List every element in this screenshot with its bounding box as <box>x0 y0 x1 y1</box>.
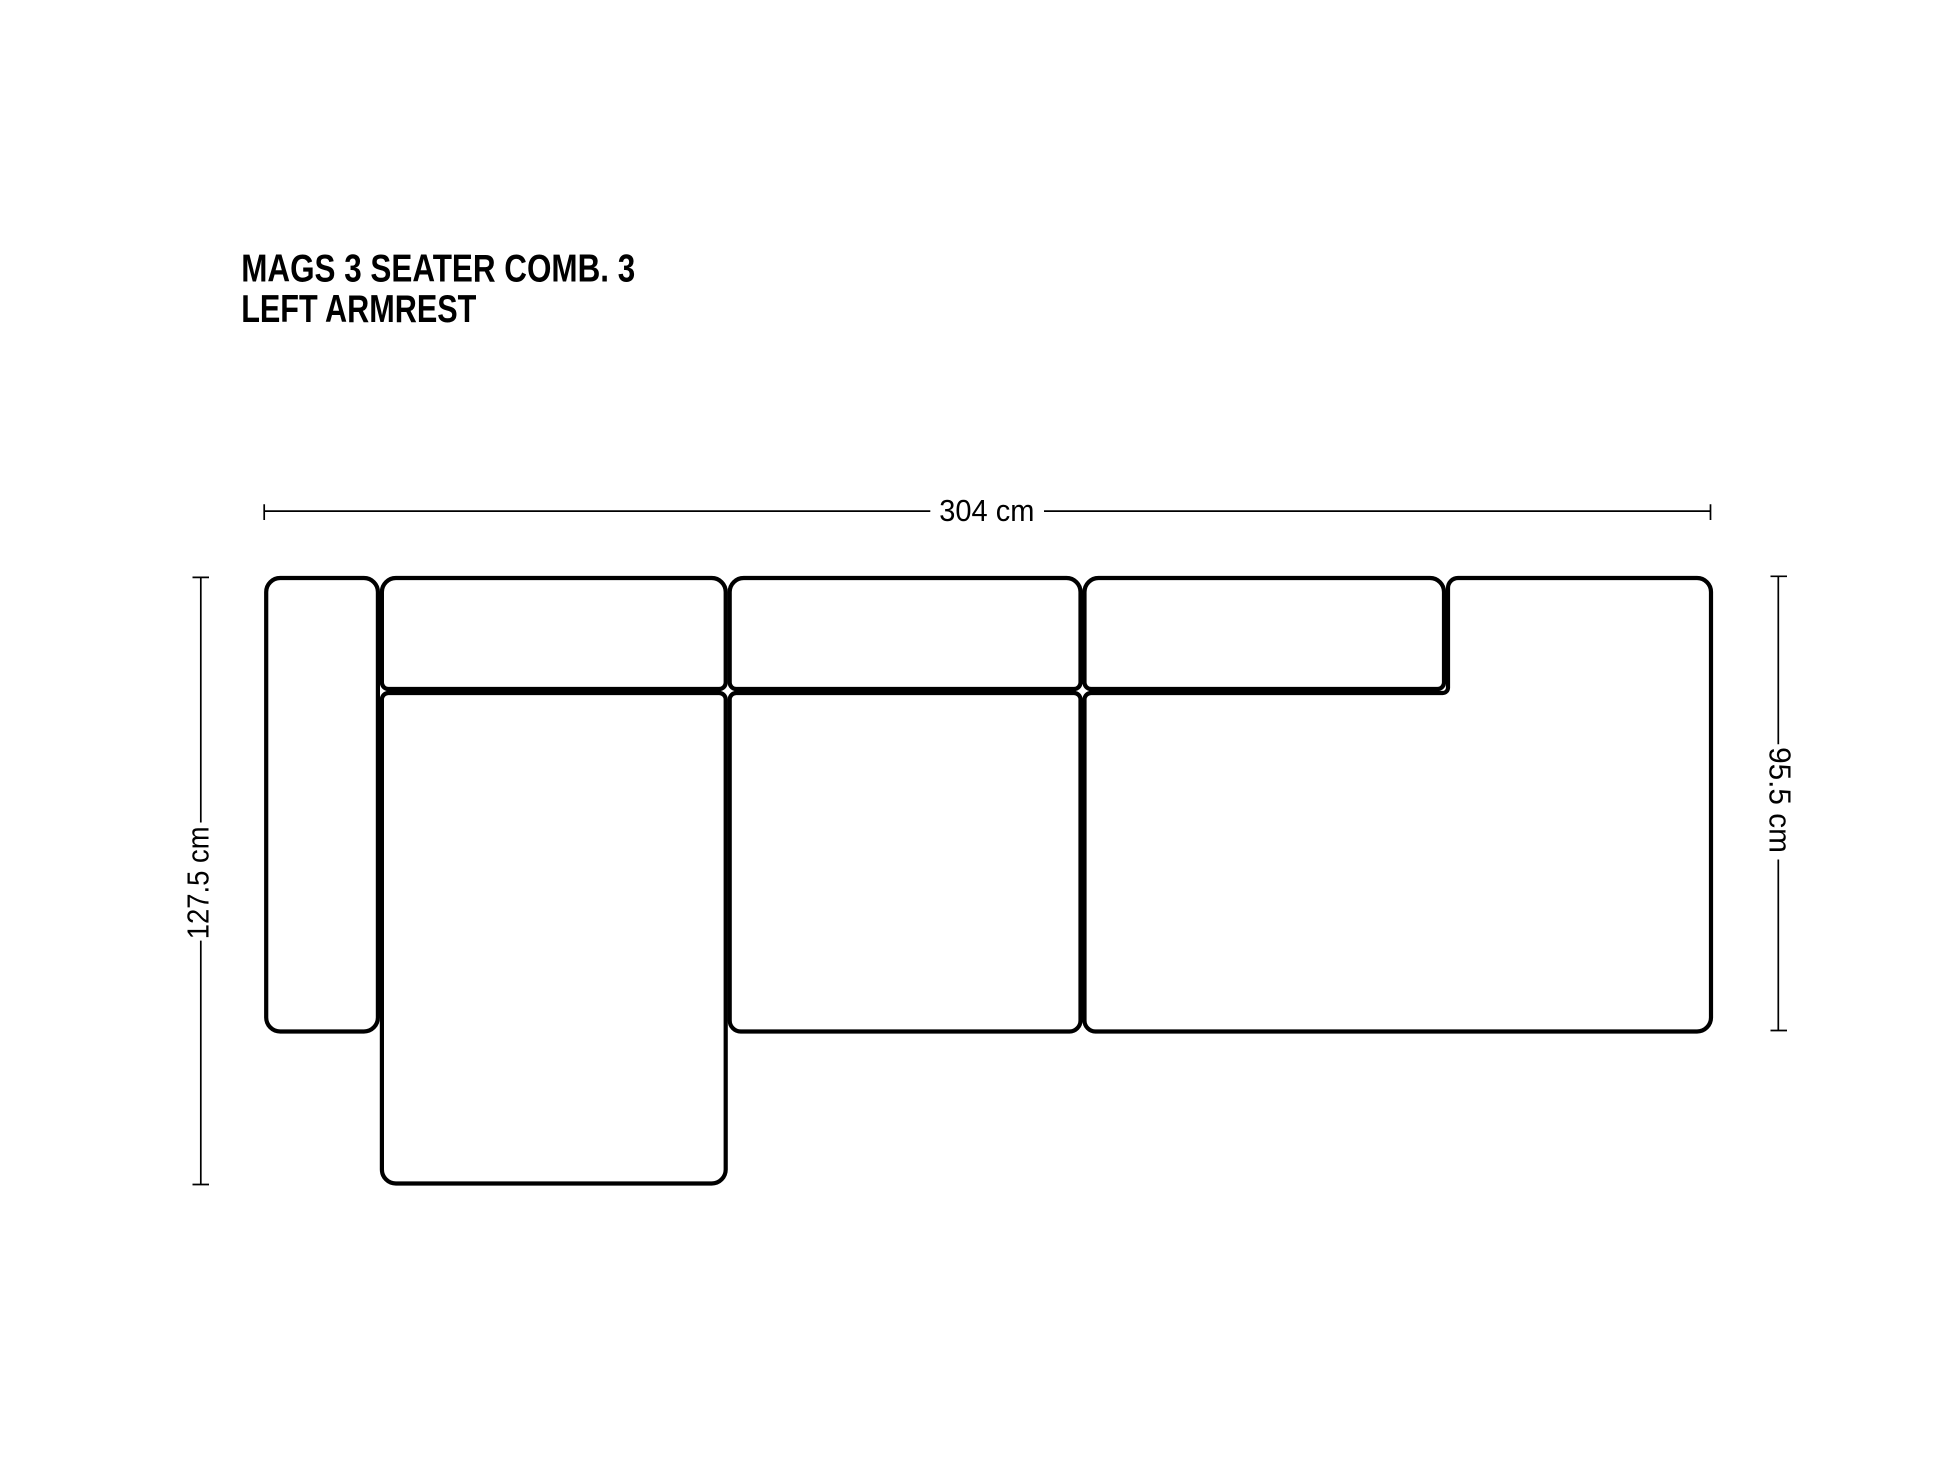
svg-text:LEFT ARMREST: LEFT ARMREST <box>241 287 476 330</box>
svg-text:304 cm: 304 cm <box>939 494 1034 528</box>
svg-text:MAGS 3 SEATER COMB. 3: MAGS 3 SEATER COMB. 3 <box>241 247 635 290</box>
svg-text:127.5 cm: 127.5 cm <box>182 826 216 939</box>
svg-text:95.5 cm: 95.5 cm <box>1762 747 1797 853</box>
